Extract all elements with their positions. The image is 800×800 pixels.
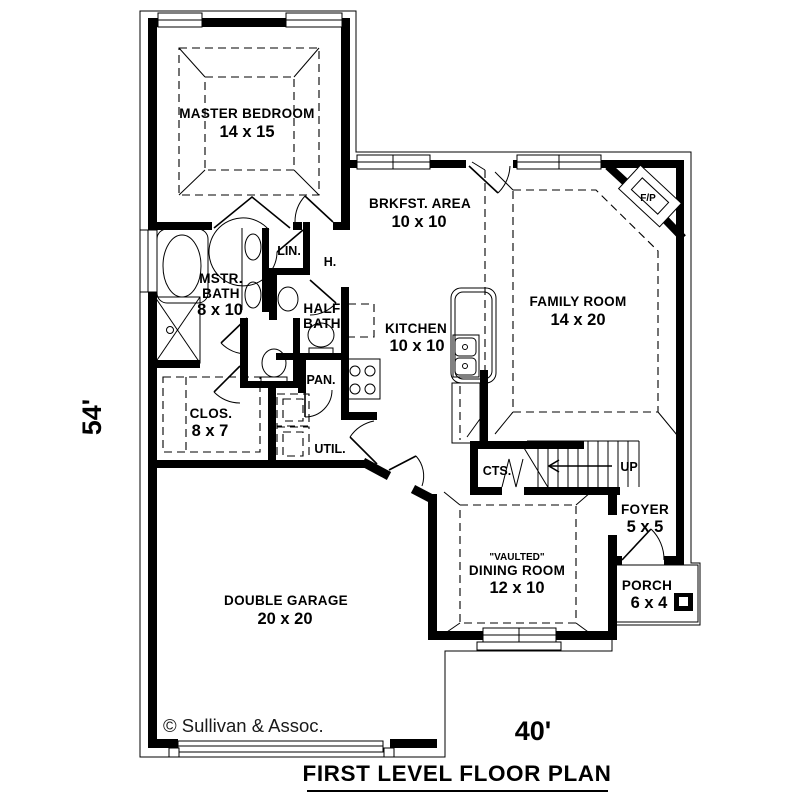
kitchen-island-sink bbox=[451, 288, 496, 443]
label-mstr-bath-1: MSTR. bbox=[199, 271, 243, 286]
label-pantry: PAN. bbox=[307, 373, 336, 387]
label-kitchen-dims: 10 x 10 bbox=[389, 337, 444, 355]
label-half-bath-2: BATH bbox=[303, 316, 341, 331]
label-hall: H. bbox=[324, 255, 337, 269]
label-dining-dims: 12 x 10 bbox=[489, 579, 544, 597]
double-door bbox=[214, 197, 290, 228]
shower bbox=[155, 297, 200, 363]
window-icon bbox=[140, 230, 157, 292]
window-icon bbox=[477, 628, 561, 650]
label-utility: UTIL. bbox=[314, 442, 345, 456]
window-icon bbox=[158, 13, 202, 27]
label-closet: CLOS. bbox=[190, 406, 233, 421]
label-foyer: FOYER bbox=[621, 502, 669, 517]
label-half-bath-1: HALF bbox=[303, 301, 340, 316]
label-breakfast: BRKFST. AREA bbox=[369, 196, 471, 211]
door-swing bbox=[469, 166, 510, 193]
label-dining: DINING ROOM bbox=[469, 563, 565, 578]
door-swing bbox=[214, 366, 240, 403]
label-up: UP bbox=[620, 460, 637, 474]
porch-column bbox=[674, 593, 693, 611]
label-garage: DOUBLE GARAGE bbox=[224, 593, 348, 608]
label-porch: PORCH bbox=[622, 578, 672, 593]
label-linen: LIN. bbox=[277, 244, 301, 258]
interior-walls bbox=[148, 222, 620, 495]
window-icon bbox=[517, 155, 601, 169]
window-icon bbox=[357, 155, 430, 169]
floor-plan-drawing: MASTER BEDROOM 14 x 15 BRKFST. AREA 10 x… bbox=[0, 0, 800, 800]
label-coats: CTS. bbox=[483, 464, 511, 478]
label-dining-tag: "VAULTED" bbox=[489, 552, 544, 563]
dimension-height: 54' bbox=[77, 399, 107, 435]
label-porch-dims: 6 x 4 bbox=[631, 594, 669, 612]
door-swing bbox=[295, 196, 333, 222]
toilet bbox=[261, 349, 287, 385]
label-garage-dims: 20 x 20 bbox=[257, 610, 312, 628]
label-mstr-bath-2: BATH bbox=[202, 286, 240, 301]
door-swing bbox=[389, 456, 424, 486]
label-mstr-bath-dims: 8 x 10 bbox=[197, 301, 243, 319]
dimension-width: 40' bbox=[515, 716, 551, 746]
label-breakfast-dims: 10 x 10 bbox=[391, 213, 446, 231]
pedestal-sink bbox=[278, 287, 298, 311]
garage-door bbox=[169, 741, 394, 757]
copyright-text: © Sullivan & Assoc. bbox=[163, 715, 324, 736]
label-master-bedroom: MASTER BEDROOM bbox=[179, 106, 314, 121]
label-fireplace: F/P bbox=[640, 193, 656, 204]
label-family-room-dims: 14 x 20 bbox=[550, 311, 605, 329]
page-title: FIRST LEVEL FLOOR PLAN bbox=[302, 761, 611, 786]
label-foyer-dims: 5 x 5 bbox=[627, 518, 664, 536]
label-family-room: FAMILY ROOM bbox=[529, 294, 626, 309]
label-closet-dims: 8 x 7 bbox=[192, 422, 229, 440]
bathtub bbox=[157, 229, 208, 303]
door-swing bbox=[350, 421, 377, 464]
window-icon bbox=[286, 13, 342, 27]
label-master-bedroom-dims: 14 x 15 bbox=[219, 123, 274, 141]
floor-plan-canvas: MASTER BEDROOM 14 x 15 BRKFST. AREA 10 x… bbox=[0, 0, 800, 800]
refrigerator bbox=[348, 304, 374, 337]
label-kitchen: KITCHEN bbox=[385, 321, 447, 336]
stove bbox=[345, 359, 380, 399]
double-vanity-sinks bbox=[242, 228, 261, 310]
